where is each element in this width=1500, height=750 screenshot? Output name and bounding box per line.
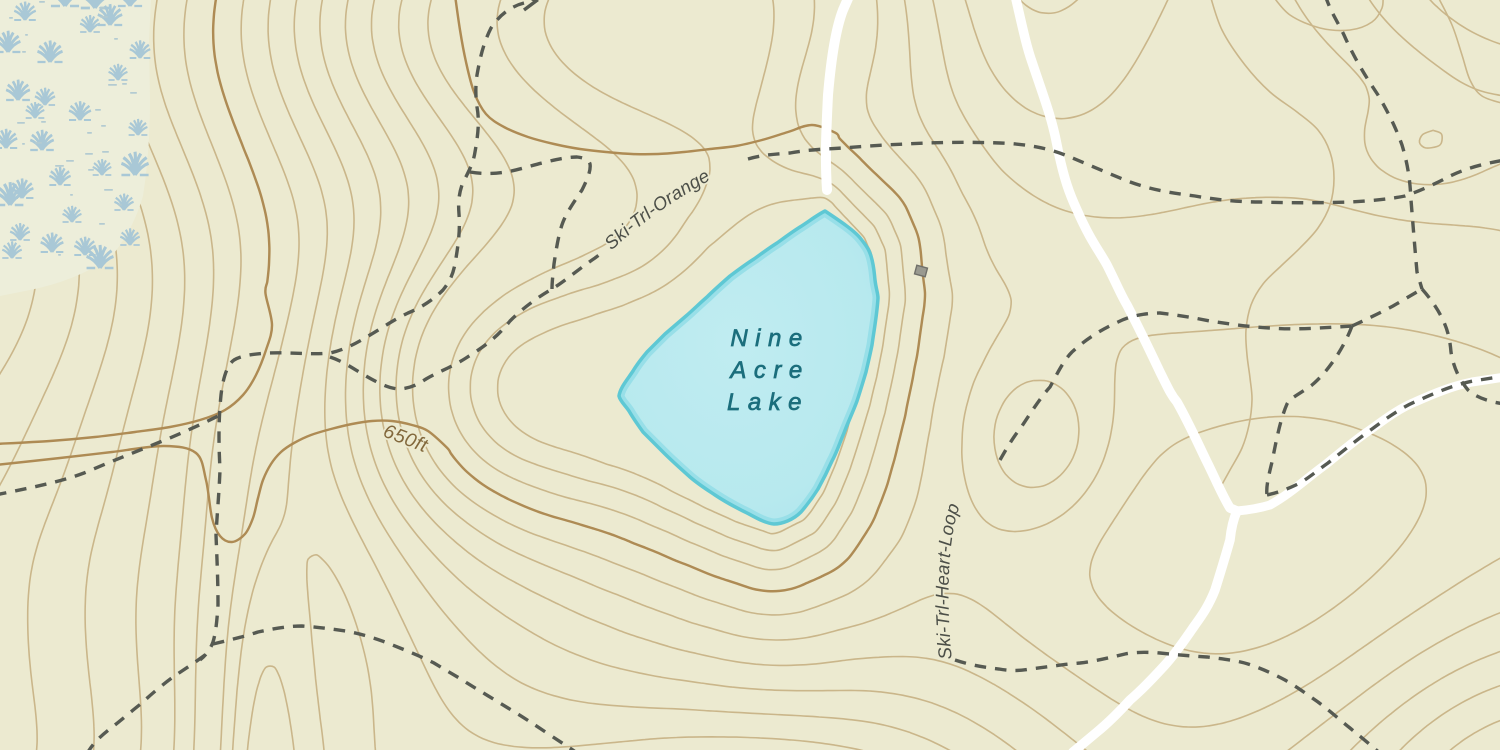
svg-text:Lake: Lake (727, 389, 809, 416)
svg-text:Nine: Nine (730, 325, 809, 352)
svg-text:Acre: Acre (728, 357, 809, 384)
